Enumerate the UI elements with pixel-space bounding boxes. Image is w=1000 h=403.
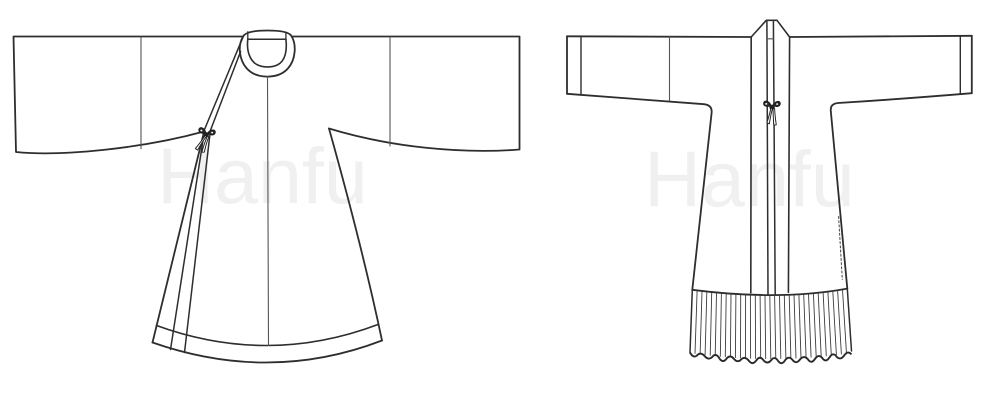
svg-text:Hanfu: Hanfu (644, 134, 855, 223)
svg-text:Hanfu: Hanfu (157, 131, 368, 220)
